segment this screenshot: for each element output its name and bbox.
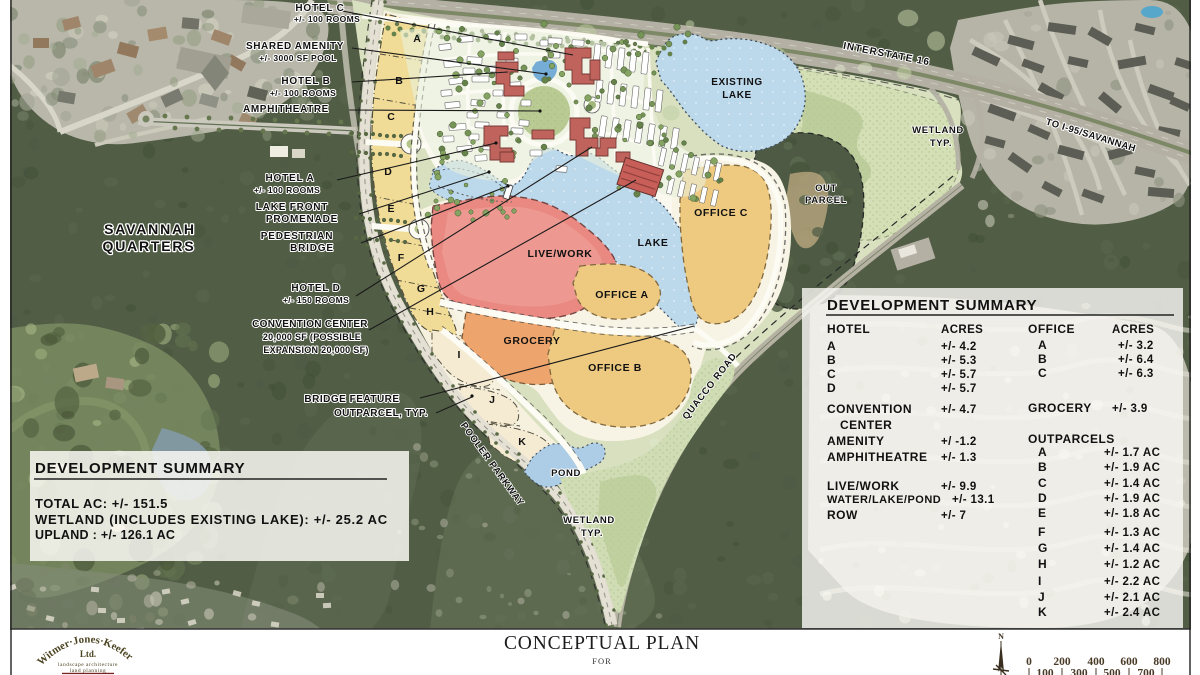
svg-text:Ltd.: Ltd. — [80, 649, 96, 659]
svg-text:ACRES: ACRES — [1112, 324, 1154, 336]
svg-text:CONVENTION CENTER: CONVENTION CENTER — [252, 319, 368, 330]
svg-text:B: B — [395, 75, 403, 87]
svg-text:LIVE/WORK: LIVE/WORK — [827, 479, 900, 493]
svg-text:+/- 5.7: +/- 5.7 — [941, 383, 977, 395]
svg-text:+/- 2.1 AC: +/- 2.1 AC — [1104, 592, 1160, 604]
svg-text:+/- 3.2: +/- 3.2 — [1118, 340, 1154, 352]
svg-text:D: D — [384, 166, 392, 178]
svg-text:+/- 1.8 AC: +/- 1.8 AC — [1104, 508, 1160, 520]
svg-text:+/- 100 ROOMS: +/- 100 ROOMS — [294, 14, 360, 24]
svg-text:E: E — [1038, 506, 1047, 520]
svg-text:F: F — [1038, 525, 1046, 539]
svg-text:+/- 150 ROOMS: +/- 150 ROOMS — [283, 295, 349, 305]
svg-text:600: 600 — [1120, 656, 1138, 668]
svg-text:+/- 4.7: +/- 4.7 — [941, 404, 977, 416]
svg-text:WETLAND (INCLUDES EXISTING LAK: WETLAND (INCLUDES EXISTING LAKE): +/- 25… — [35, 512, 388, 527]
svg-text:SAVANNAH: SAVANNAH — [104, 221, 196, 237]
svg-text:HOTEL: HOTEL — [827, 322, 870, 336]
svg-text:+/- 6.4: +/- 6.4 — [1118, 354, 1154, 366]
svg-text:+/- 1.4 AC: +/- 1.4 AC — [1104, 478, 1160, 490]
svg-text:GROCERY: GROCERY — [504, 335, 561, 347]
svg-text:PARCEL: PARCEL — [805, 195, 847, 206]
svg-text:K: K — [1038, 605, 1047, 619]
svg-text:N: N — [998, 632, 1004, 641]
svg-text:AMPHITHEATRE: AMPHITHEATRE — [243, 104, 329, 115]
svg-text:A: A — [413, 33, 421, 45]
svg-text:AMENITY: AMENITY — [827, 434, 885, 448]
svg-text:J: J — [1038, 590, 1045, 604]
svg-text:OFFICE A: OFFICE A — [595, 289, 648, 301]
svg-text:+/- 1.3 AC: +/- 1.3 AC — [1104, 527, 1160, 539]
svg-text:700: 700 — [1137, 668, 1155, 675]
svg-text:+/- 6.3: +/- 6.3 — [1118, 368, 1154, 380]
svg-text:+/- 1.9 AC: +/- 1.9 AC — [1104, 493, 1160, 505]
svg-text:TOTAL AC: +/- 151.5: TOTAL AC: +/- 151.5 — [35, 496, 168, 511]
svg-text:G: G — [417, 283, 425, 295]
svg-text:+/- 1.3: +/- 1.3 — [941, 452, 977, 464]
svg-text:UPLAND : +/- 126.1 AC: UPLAND : +/- 126.1 AC — [35, 528, 175, 542]
svg-text:20,000 SF (POSSIBLE: 20,000 SF (POSSIBLE — [263, 332, 361, 342]
svg-text:+/- 7: +/- 7 — [941, 510, 966, 522]
svg-text:I: I — [458, 349, 461, 361]
svg-text:J: J — [489, 394, 495, 406]
svg-text:TYP.: TYP. — [581, 528, 603, 539]
svg-text:DEVELOPMENT SUMMARY: DEVELOPMENT SUMMARY — [35, 460, 246, 477]
svg-text:CONCEPTUAL PLAN: CONCEPTUAL PLAN — [504, 633, 700, 654]
svg-text:DEVELOPMENT SUMMARY: DEVELOPMENT SUMMARY — [827, 297, 1038, 314]
svg-text:LAKE: LAKE — [638, 237, 669, 249]
svg-text:AMPHITHEATRE: AMPHITHEATRE — [827, 450, 927, 464]
svg-text:B: B — [827, 353, 836, 367]
svg-text:I: I — [1038, 574, 1042, 588]
svg-text:+/- 1.4 AC: +/- 1.4 AC — [1104, 543, 1160, 555]
svg-text:A: A — [827, 339, 836, 353]
svg-text:+/- 100 ROOMS: +/- 100 ROOMS — [270, 88, 336, 98]
svg-text:OFFICE: OFFICE — [1028, 322, 1075, 336]
svg-text:OUT: OUT — [815, 183, 837, 194]
svg-text:+/- 3000 SF POOL: +/- 3000 SF POOL — [259, 53, 337, 63]
svg-text:SHARED AMENITY: SHARED AMENITY — [246, 41, 344, 52]
svg-text:BRIDGE: BRIDGE — [290, 243, 334, 254]
svg-text:PEDESTRIAN: PEDESTRIAN — [261, 231, 333, 242]
svg-text:WETLAND: WETLAND — [912, 125, 964, 136]
svg-text:400: 400 — [1087, 656, 1105, 668]
svg-text:G: G — [1038, 541, 1048, 555]
svg-text:LIVE/WORK: LIVE/WORK — [528, 248, 593, 260]
svg-text:ROW: ROW — [827, 508, 858, 522]
svg-text:EXPANSION 20,000 SF): EXPANSION 20,000 SF) — [263, 345, 368, 355]
svg-text:CENTER: CENTER — [840, 418, 892, 432]
svg-text:OUTPARCELS: OUTPARCELS — [1028, 432, 1115, 446]
svg-text:+/- 9.9: +/- 9.9 — [941, 481, 977, 493]
svg-text:+/- 5.7: +/- 5.7 — [941, 369, 977, 381]
svg-text:+/- 100 ROOMS: +/- 100 ROOMS — [254, 185, 320, 195]
svg-text:WETLAND: WETLAND — [563, 515, 615, 526]
svg-text:C: C — [1038, 476, 1047, 490]
svg-text:POND: POND — [551, 468, 581, 479]
svg-text:+/- 5.3: +/- 5.3 — [941, 355, 977, 367]
svg-text:B: B — [1038, 352, 1047, 366]
svg-text:K: K — [518, 436, 526, 448]
svg-text:A: A — [1038, 445, 1047, 459]
svg-text:OFFICE C: OFFICE C — [694, 207, 748, 219]
svg-text:LAKE FRONT: LAKE FRONT — [256, 202, 328, 213]
svg-text:+/- 13.1: +/- 13.1 — [952, 494, 995, 506]
svg-text:ACRES: ACRES — [941, 324, 983, 336]
svg-text:+/- 1.9 AC: +/- 1.9 AC — [1104, 462, 1160, 474]
svg-text:EXISTING: EXISTING — [711, 77, 762, 88]
svg-text:+/- 2.2 AC: +/- 2.2 AC — [1104, 576, 1160, 588]
svg-text:FOR: FOR — [592, 656, 612, 666]
svg-text:+/- 4.2: +/- 4.2 — [941, 341, 977, 353]
svg-text:500: 500 — [1103, 668, 1121, 675]
svg-text:HOTEL A: HOTEL A — [266, 173, 315, 184]
svg-text:200: 200 — [1053, 656, 1071, 668]
svg-text:OFFICE B: OFFICE B — [588, 362, 642, 374]
svg-text:+/- 1.2 AC: +/- 1.2 AC — [1104, 559, 1160, 571]
svg-text:A: A — [1038, 338, 1047, 352]
svg-text:QUARTERS: QUARTERS — [103, 238, 196, 254]
svg-text:HOTEL B: HOTEL B — [281, 76, 330, 87]
svg-text:HOTEL D: HOTEL D — [291, 283, 340, 294]
svg-text:C: C — [387, 111, 395, 123]
svg-text:F: F — [398, 252, 405, 264]
svg-text:D: D — [827, 381, 836, 395]
svg-text:+/- 3.9: +/- 3.9 — [1112, 403, 1148, 415]
svg-text:PROMENADE: PROMENADE — [266, 214, 338, 225]
svg-text:C: C — [1038, 366, 1047, 380]
svg-text:300: 300 — [1070, 668, 1088, 675]
svg-text:B: B — [1038, 460, 1047, 474]
svg-text:D: D — [1038, 491, 1047, 505]
svg-text:WATER/LAKE/POND: WATER/LAKE/POND — [827, 494, 941, 506]
svg-text:C: C — [827, 367, 836, 381]
svg-text:800: 800 — [1153, 656, 1171, 668]
svg-text:E: E — [387, 203, 394, 215]
svg-text:TYP.: TYP. — [930, 138, 952, 149]
svg-text:OUTPARCEL, TYP.: OUTPARCEL, TYP. — [334, 408, 428, 419]
svg-text:H: H — [1038, 557, 1047, 571]
svg-text:H: H — [426, 306, 434, 318]
svg-text:+/ -1.2: +/ -1.2 — [941, 436, 977, 448]
svg-text:+/- 2.4 AC: +/- 2.4 AC — [1104, 607, 1160, 619]
svg-text:100: 100 — [1036, 668, 1054, 675]
svg-text:HOTEL C: HOTEL C — [295, 3, 344, 14]
svg-text:LAKE: LAKE — [722, 90, 752, 101]
svg-text:BRIDGE FEATURE: BRIDGE FEATURE — [304, 394, 399, 405]
svg-text:CONVENTION: CONVENTION — [827, 402, 912, 416]
svg-text:GROCERY: GROCERY — [1028, 401, 1092, 415]
svg-text:0: 0 — [1026, 656, 1032, 668]
svg-text:+/- 1.7 AC: +/- 1.7 AC — [1104, 447, 1160, 459]
